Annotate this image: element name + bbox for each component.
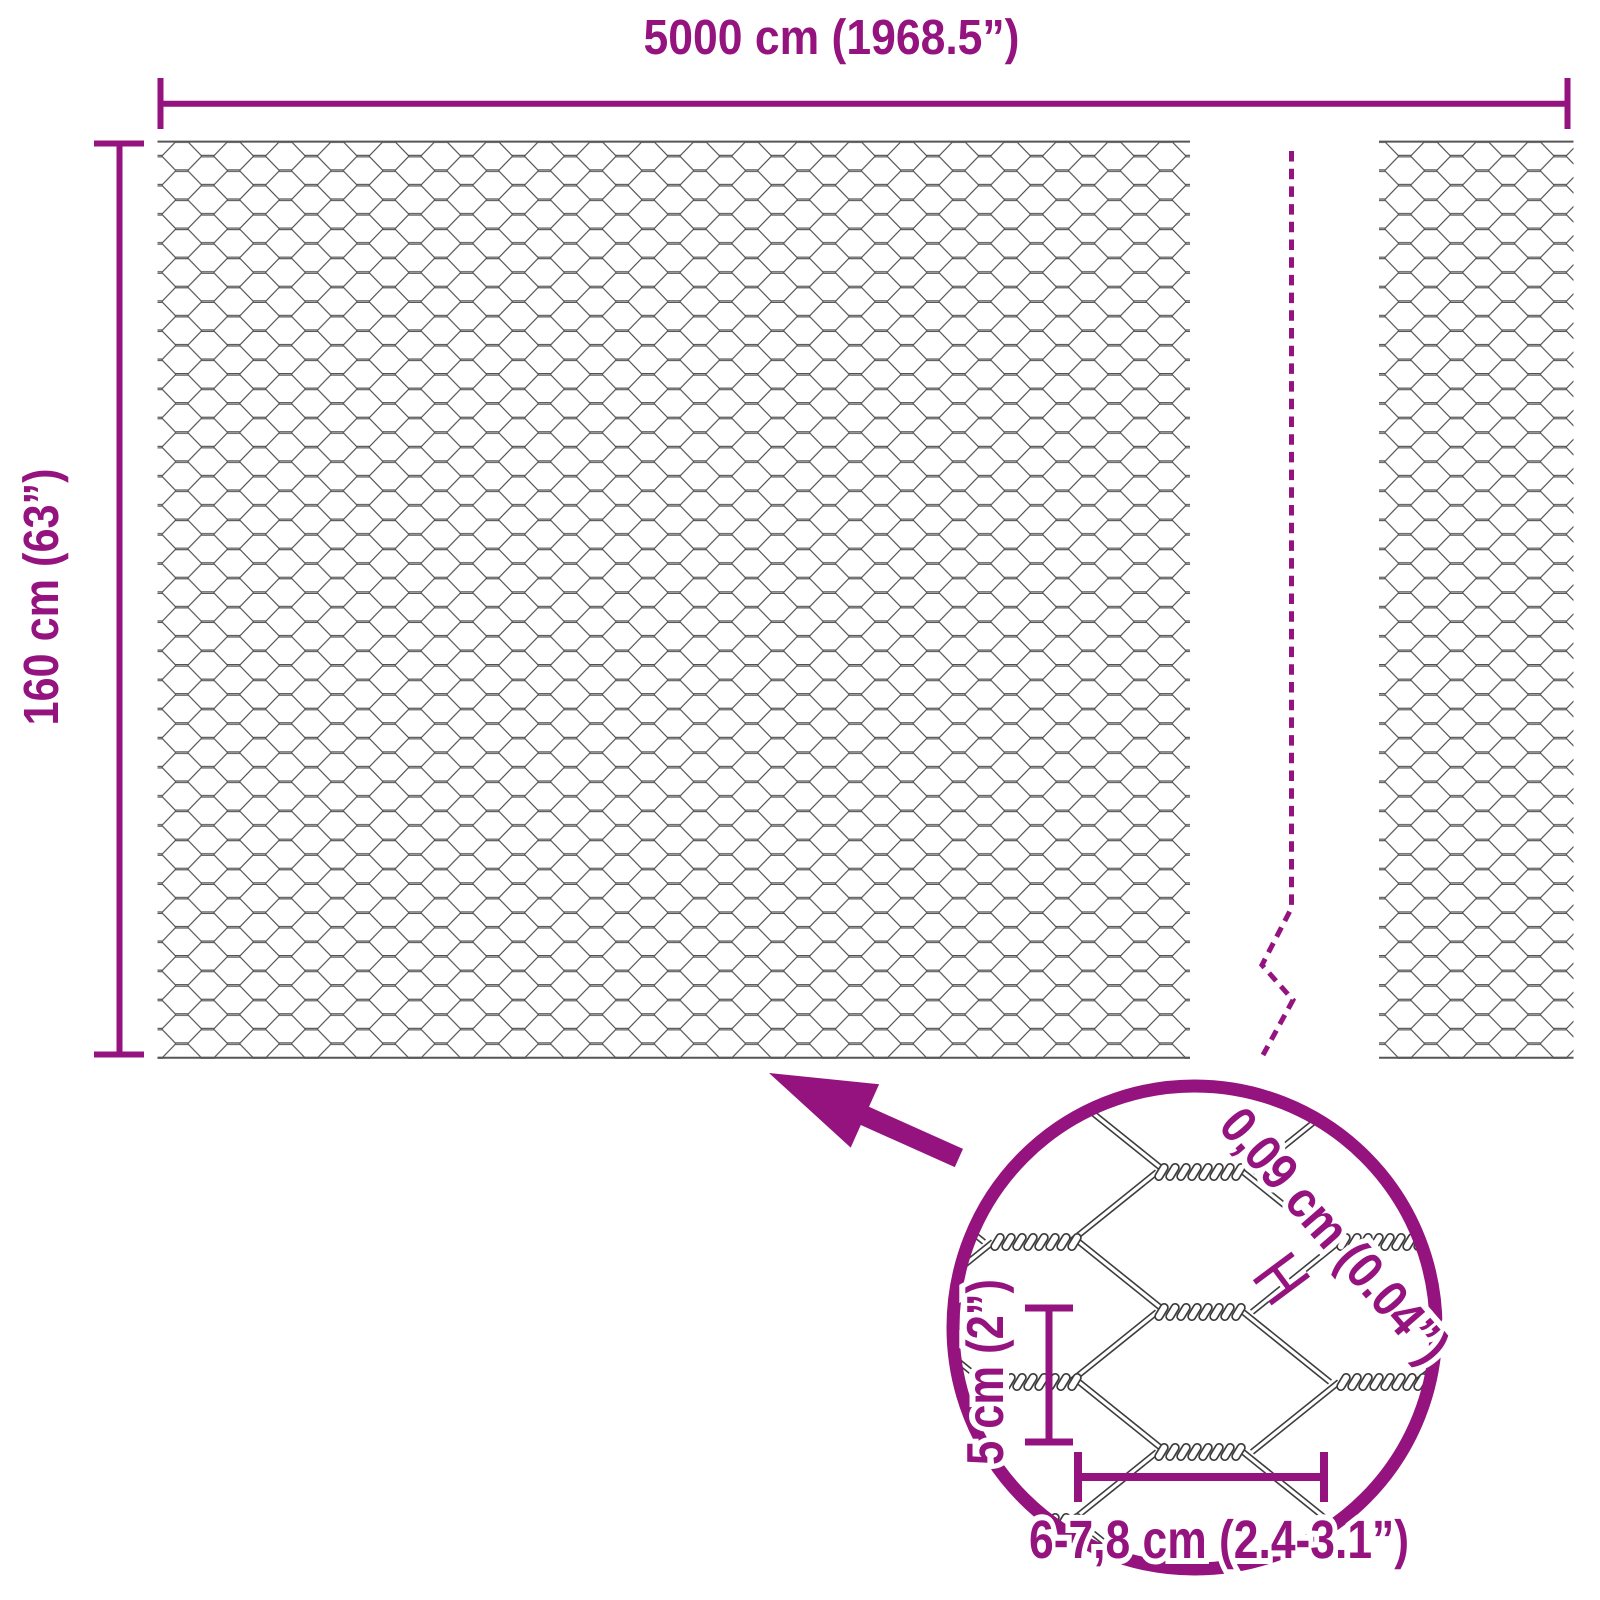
svg-text:5000 cm (1968.5”): 5000 cm (1968.5”)	[644, 10, 1020, 65]
svg-text:6-7,8 cm (2.4-3.1”): 6-7,8 cm (2.4-3.1”)	[1029, 1510, 1409, 1570]
svg-text:5 cm (2”): 5 cm (2”)	[957, 1279, 1015, 1465]
svg-text:160 cm (63”): 160 cm (63”)	[14, 469, 69, 726]
